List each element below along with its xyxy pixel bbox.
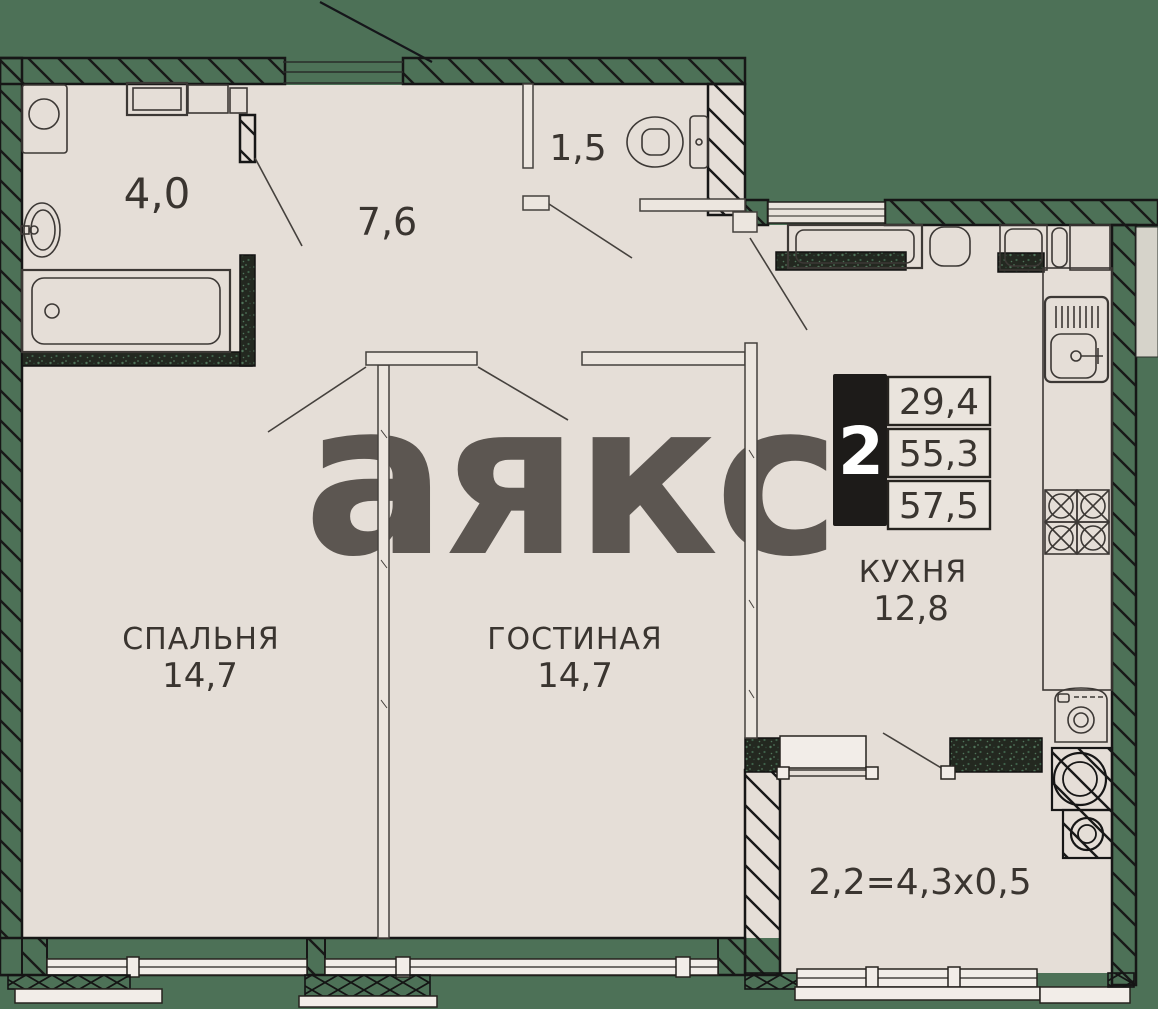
balcony-door-leaf xyxy=(780,736,866,768)
living-window-mullion-1 xyxy=(396,957,410,977)
shaft-block-1 xyxy=(1052,748,1112,810)
wall-left xyxy=(0,58,22,975)
wall-kitchen-top-b xyxy=(885,200,1158,225)
kitchen-area-label: 12,8 xyxy=(873,589,949,629)
wc-shelf xyxy=(640,199,745,211)
wall-bottom-pier-1 xyxy=(22,938,47,975)
balcony-dimensions-label: 2,2=4,3х0,5 xyxy=(808,862,1031,903)
railing-left xyxy=(8,975,130,989)
floor-plan-drawing: аякс xyxy=(0,0,1158,1009)
stove xyxy=(1045,490,1109,554)
balcony-door-jamb-left xyxy=(777,767,789,779)
living-name-label: ГОСТИНАЯ xyxy=(487,622,663,657)
balcony-glazing-mullion-1 xyxy=(866,967,878,987)
wall-right xyxy=(1112,225,1136,985)
partition-stub-bedroom xyxy=(366,352,477,365)
bedroom-area-label: 14,7 xyxy=(162,656,238,696)
info-badge: 2 29,4 55,3 57,5 xyxy=(833,374,990,529)
railing-balcony-right xyxy=(1108,973,1134,987)
partition-living-kitchen xyxy=(745,343,757,738)
wall-balcony-left xyxy=(745,770,780,975)
wall-bathroom-bottom xyxy=(22,352,252,366)
wall-bottom xyxy=(0,938,745,977)
badge-room-count: 2 xyxy=(838,413,884,490)
sill-center xyxy=(299,996,437,1007)
badge-value-1: 29,4 xyxy=(899,382,979,423)
wall-top-left xyxy=(0,58,285,84)
floor-plan: аякс xyxy=(0,0,1158,1009)
partition-stub-living xyxy=(582,352,745,365)
wall-top-middle xyxy=(403,58,745,84)
balcony-door-hinge xyxy=(941,766,955,779)
wall-bottom-pier-2 xyxy=(307,938,325,975)
badge-value-3: 57,5 xyxy=(899,486,979,527)
living-area-label: 14,7 xyxy=(537,656,613,696)
railing-balcony-left xyxy=(745,973,797,989)
living-window-mullion-2 xyxy=(676,957,690,977)
wall-wc-kitchen xyxy=(708,84,745,215)
hallway-area-label: 7,6 xyxy=(357,200,417,244)
wall-bottom-pier-3 xyxy=(718,938,745,975)
adjacent-area xyxy=(1136,227,1158,357)
bathroom-area-label: 4,0 xyxy=(124,169,191,218)
bedroom-window-mullion xyxy=(127,957,139,977)
kitchen-name-label: КУХНЯ xyxy=(859,555,968,590)
wall-bathroom-right xyxy=(240,115,255,162)
partition-wc-left xyxy=(523,84,533,168)
badge-value-2: 55,3 xyxy=(899,434,979,475)
bedroom-name-label: СПАЛЬНЯ xyxy=(122,622,280,657)
sill-left xyxy=(15,989,162,1003)
wall-bathroom-right-lower xyxy=(240,255,255,366)
balcony-glazing-mullion-2 xyxy=(948,967,960,987)
kitchen-window xyxy=(768,202,885,223)
partition-wc-stub xyxy=(523,196,549,210)
wc-area-label: 1,5 xyxy=(549,128,606,169)
kitchen-door-stub xyxy=(733,212,757,232)
railing-center xyxy=(305,975,430,996)
balcony-sill xyxy=(795,987,1040,1000)
wall-balcony-door-right xyxy=(950,738,1042,772)
balcony-sill-right xyxy=(1040,987,1130,1003)
balcony-door-jamb-right xyxy=(866,767,878,779)
partition-bedroom-living xyxy=(378,365,389,938)
